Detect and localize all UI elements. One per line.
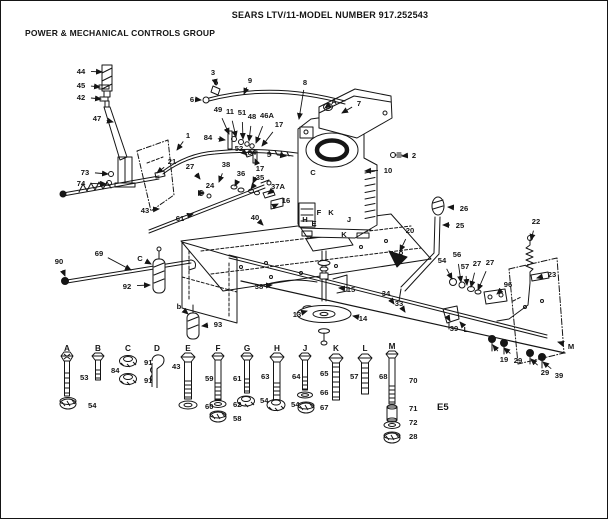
callout-leader-line [460,322,461,323]
callout-leader-line [299,90,304,119]
part-callout-93: 93 [214,320,222,329]
legend-part-number-84: 84 [111,366,120,375]
part-callout-27: 27 [473,259,481,268]
part-callout-29: 29 [514,356,522,365]
part-callout-17: 17 [256,164,264,173]
part-callout-F: F [317,208,322,217]
part-callout-84: 84 [248,148,257,157]
callout-leader-line [256,126,263,143]
legend-letter-A: A [64,344,70,353]
callout-leader-line [558,342,563,344]
legend-part-number-62: 62 [233,400,241,409]
hex-bolt-long-icon [210,353,226,422]
hex-bolt-large-icon [329,354,343,400]
legend-part-number-64: 64 [292,372,301,381]
legend-part-number-43: 43 [172,362,180,371]
part-callout-C: C [310,168,316,177]
callout-leader-line [147,262,151,264]
callout-leader-line [249,126,251,141]
legend-letter-L: L [362,344,367,353]
callout-leader-line [91,71,102,72]
callout-leader-line [251,185,254,189]
part-callout-21: 21 [168,157,177,166]
legend-part-number-58: 58 [233,414,241,423]
part-callout-14: 14 [359,314,368,323]
mounting-screw [391,153,403,158]
clutch-rod-spring [60,171,165,197]
legend-part-number-67: 67 [320,403,328,412]
part-callout-23: 23 [548,270,556,279]
hex-bolt-large-icon [358,354,372,394]
part-callout-56: 56 [453,250,461,259]
legend-part-number-60: 60 [205,402,213,411]
part-callout-J: J [347,215,351,224]
part-callout-29: 29 [541,368,549,377]
part-callout-13: 13 [293,310,301,319]
callout-leader-line [202,325,208,326]
legend-fastener-glyphs [60,351,400,443]
part-callout-47: 47 [93,114,101,123]
part-callout-27: 27 [486,258,494,267]
part-callout-61: 61 [176,214,185,223]
part-callout-49: 49 [214,105,222,114]
callout-leader-line [537,277,542,278]
tension-spring [526,236,533,284]
part-callout-57: 57 [461,262,469,271]
part-callout-24: 24 [206,181,215,190]
callout-leader-line [137,285,150,286]
part-callout-38: 38 [222,160,230,169]
legend-part-number-70: 70 [409,376,417,385]
legend-part-number-61: 61 [233,374,242,383]
part-callout-84: 84 [204,133,213,142]
callout-layer: 4445424773742163987A2101844911514846A175… [55,67,574,380]
part-callout-b: b [177,302,182,311]
legend-letter-H: H [274,344,280,353]
callout-leader-line [268,193,269,194]
callout-leader-line [177,141,183,150]
hex-bolt-icon [298,353,315,413]
callout-leader-line [400,239,406,251]
part-callout-E: E [311,219,316,228]
part-callout-9: 9 [248,76,252,85]
legend-part-number-91: 91 [144,376,153,385]
part-callout-K: K [328,208,334,217]
part-callout-19: 19 [500,355,508,364]
callout-leader-line [107,120,113,122]
part-callout-96: 96 [504,280,512,289]
part-callout-54: 54 [438,256,447,265]
legend-letter-M: M [389,342,396,351]
part-callout-22: 22 [532,217,540,226]
part-callout-1: 1 [186,131,191,140]
part-callout-37A: 37A [271,182,285,191]
pulley-assembly [264,251,351,345]
legend-part-number-54: 54 [291,400,300,409]
callout-leader-line [471,273,475,287]
part-callout-11: 11 [226,107,235,116]
callout-leader-line [255,159,256,161]
parts-diagram-page: SEARS LTV/11-MODEL NUMBER 917.252543 POW… [0,0,608,519]
callout-leader-line [447,269,452,279]
cotter-clip-icon [151,355,165,388]
hex-bolt-large-icon [179,353,197,409]
callout-leader-line [493,345,498,351]
callout-leader-line [262,224,263,225]
flange-nut-icon [120,356,137,386]
legend-part-number-54: 54 [260,396,269,405]
part-callout-6: 6 [190,95,194,104]
legend-part-number-53: 53 [80,373,88,382]
part-callout-46A: 46A [260,111,274,120]
part-callout-52: 52 [235,144,243,153]
callout-leader-line [219,173,222,182]
handle-grip-92 [153,247,165,293]
part-callout-39: 39 [555,371,563,380]
callout-leader-line [466,276,467,285]
part-callout-17: 17 [275,120,283,129]
part-callout-33: 33 [395,299,403,308]
part-callout-3: 3 [211,68,215,77]
callout-leader-line [478,271,486,290]
part-callout-H: H [302,215,307,224]
legend-letter-K: K [333,344,339,353]
fuel-tank [319,89,392,138]
legend-part-number-72: 72 [409,418,417,427]
part-callout-8: 8 [303,78,307,87]
callout-leader-line [232,121,236,137]
legend-letter-F: F [215,344,220,353]
legend-letter-G: G [244,344,250,353]
part-callout-36: 36 [237,169,245,178]
callout-leader-line [91,183,106,184]
legend-part-number-71: 71 [409,404,418,413]
front-support-panel [182,242,237,323]
part-callout-M: M [568,342,574,351]
legend-part-number-54: 54 [88,401,97,410]
part-callout-90: 90 [55,257,63,266]
part-callout-7: 7 [357,99,361,108]
part-callout-43: 43 [141,206,149,215]
part-callout-16: 16 [282,196,290,205]
drag-link-rod [62,260,196,285]
throttle-lever-assembly [99,65,135,187]
legend-letter-C: C [125,344,131,353]
legend-letter-J: J [303,344,308,353]
legend-part-number-68: 68 [379,372,387,381]
part-callout-44: 44 [77,67,86,76]
callout-leader-line [365,170,378,171]
exploded-parts-diagram: 4445424773742163987A2101844911514846A175… [1,1,608,519]
callout-leader-line [63,270,65,276]
hex-bolt-short-icon [92,353,104,380]
hex-bolt-large-icon [267,353,285,411]
legend-letter-B: B [95,344,101,353]
part-callout-26: 26 [460,204,468,213]
part-callout-34: 34 [382,289,391,298]
part-callout-2: 2 [412,151,416,160]
hex-bolt-lockwasher-icon [60,352,76,409]
part-callout-K: K [341,230,347,239]
part-callout-92: 92 [123,282,131,291]
throttle-cable [203,82,345,105]
legend-part-number-57: 57 [350,372,358,381]
part-callout-51: 51 [238,108,247,117]
rod-hardware-cluster [443,279,546,369]
part-callout-35: 35 [256,173,265,182]
callout-leader-line [108,258,131,270]
part-callout-10: 10 [384,166,392,175]
part-callout-27: 27 [186,162,194,171]
part-callout-A: A [331,97,337,106]
part-callout-38: 38 [255,282,263,291]
callout-leader-line [449,319,450,321]
legend-letter-E: E [185,344,191,353]
callout-leader-line [504,348,510,353]
callout-leader-line [262,132,273,146]
part-callout-20: 20 [406,226,414,235]
part-callout-15: 15 [347,285,356,294]
legend-part-number-63: 63 [261,372,269,381]
callout-leader-line [244,87,247,94]
part-callout-39: 39 [450,324,458,333]
part-callout-48: 48 [248,112,256,121]
callout-leader-line [242,122,243,139]
callout-leader-line [218,139,225,140]
part-callout-73: 73 [81,168,89,177]
callout-leader-line [185,311,188,314]
legend-part-number-65: 65 [320,369,329,378]
part-callout-L: L [464,325,469,334]
callout-leader-line [196,174,200,179]
part-callout-45: 45 [77,81,86,90]
legend-part-number-91: 91 [144,358,153,367]
legend-part-number-66: 66 [320,388,328,397]
part-callout-74: 74 [77,179,86,188]
legend-part-number-28: 28 [409,432,417,441]
hex-bolt-extra-long-icon [384,351,400,443]
callout-leader-line [222,118,229,134]
part-callout-40: 40 [251,213,259,222]
part-callout-69: 69 [95,249,103,258]
part-callout-42: 42 [77,93,85,102]
legend-part-number-59: 59 [205,374,213,383]
part-callout-C: C [137,254,143,263]
callout-leader-line [91,98,101,99]
callout-leader-line [392,301,394,304]
part-callout-25: 25 [456,221,465,230]
callout-leader-line [95,173,108,174]
legend-letter-D: D [154,344,160,353]
